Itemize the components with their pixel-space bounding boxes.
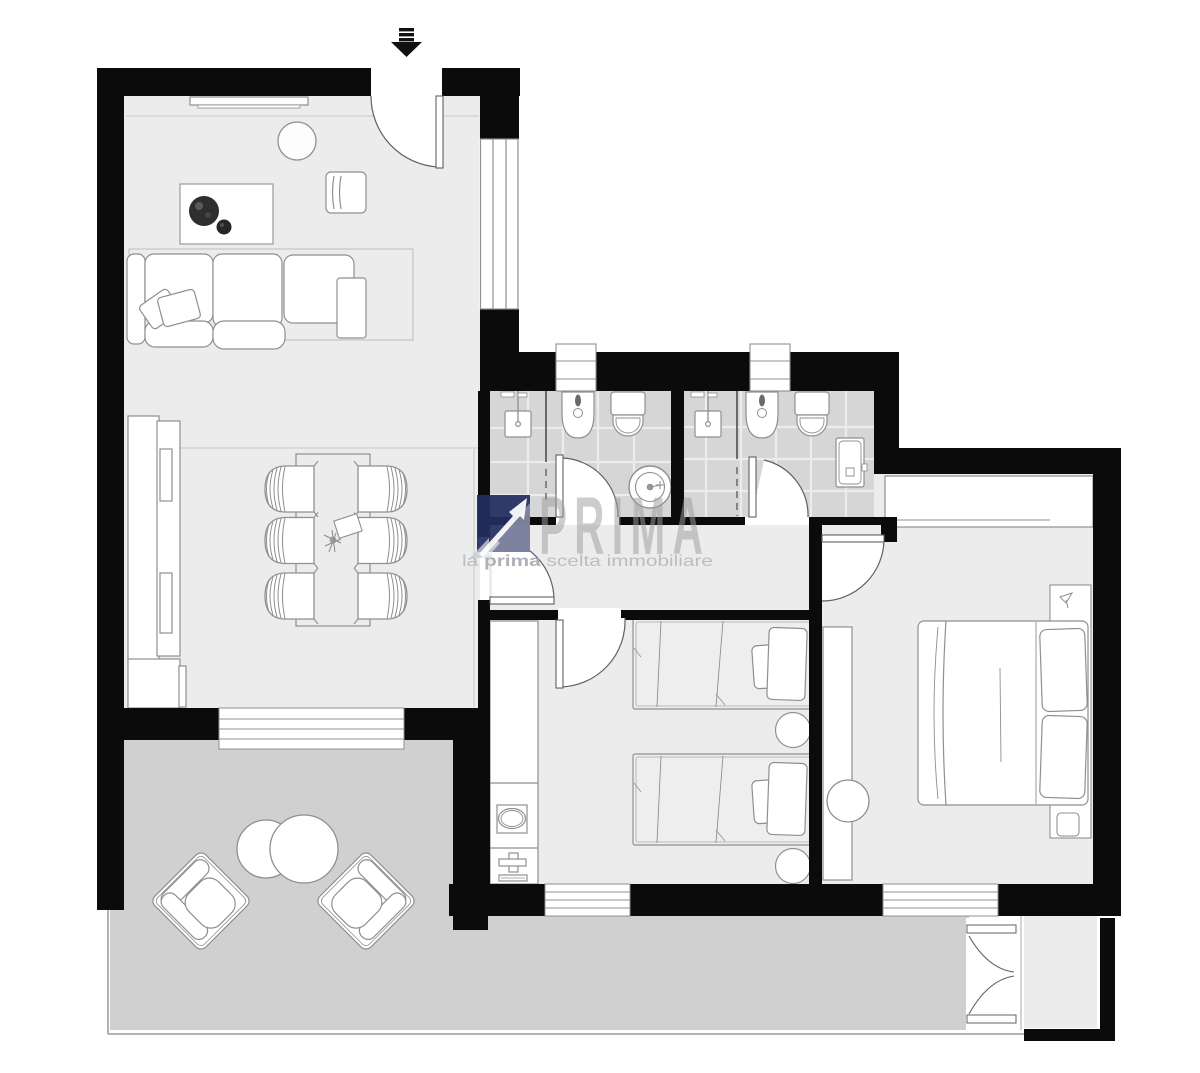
svg-text:la prima scelta immobiliare: la prima scelta immobiliare	[462, 553, 713, 570]
